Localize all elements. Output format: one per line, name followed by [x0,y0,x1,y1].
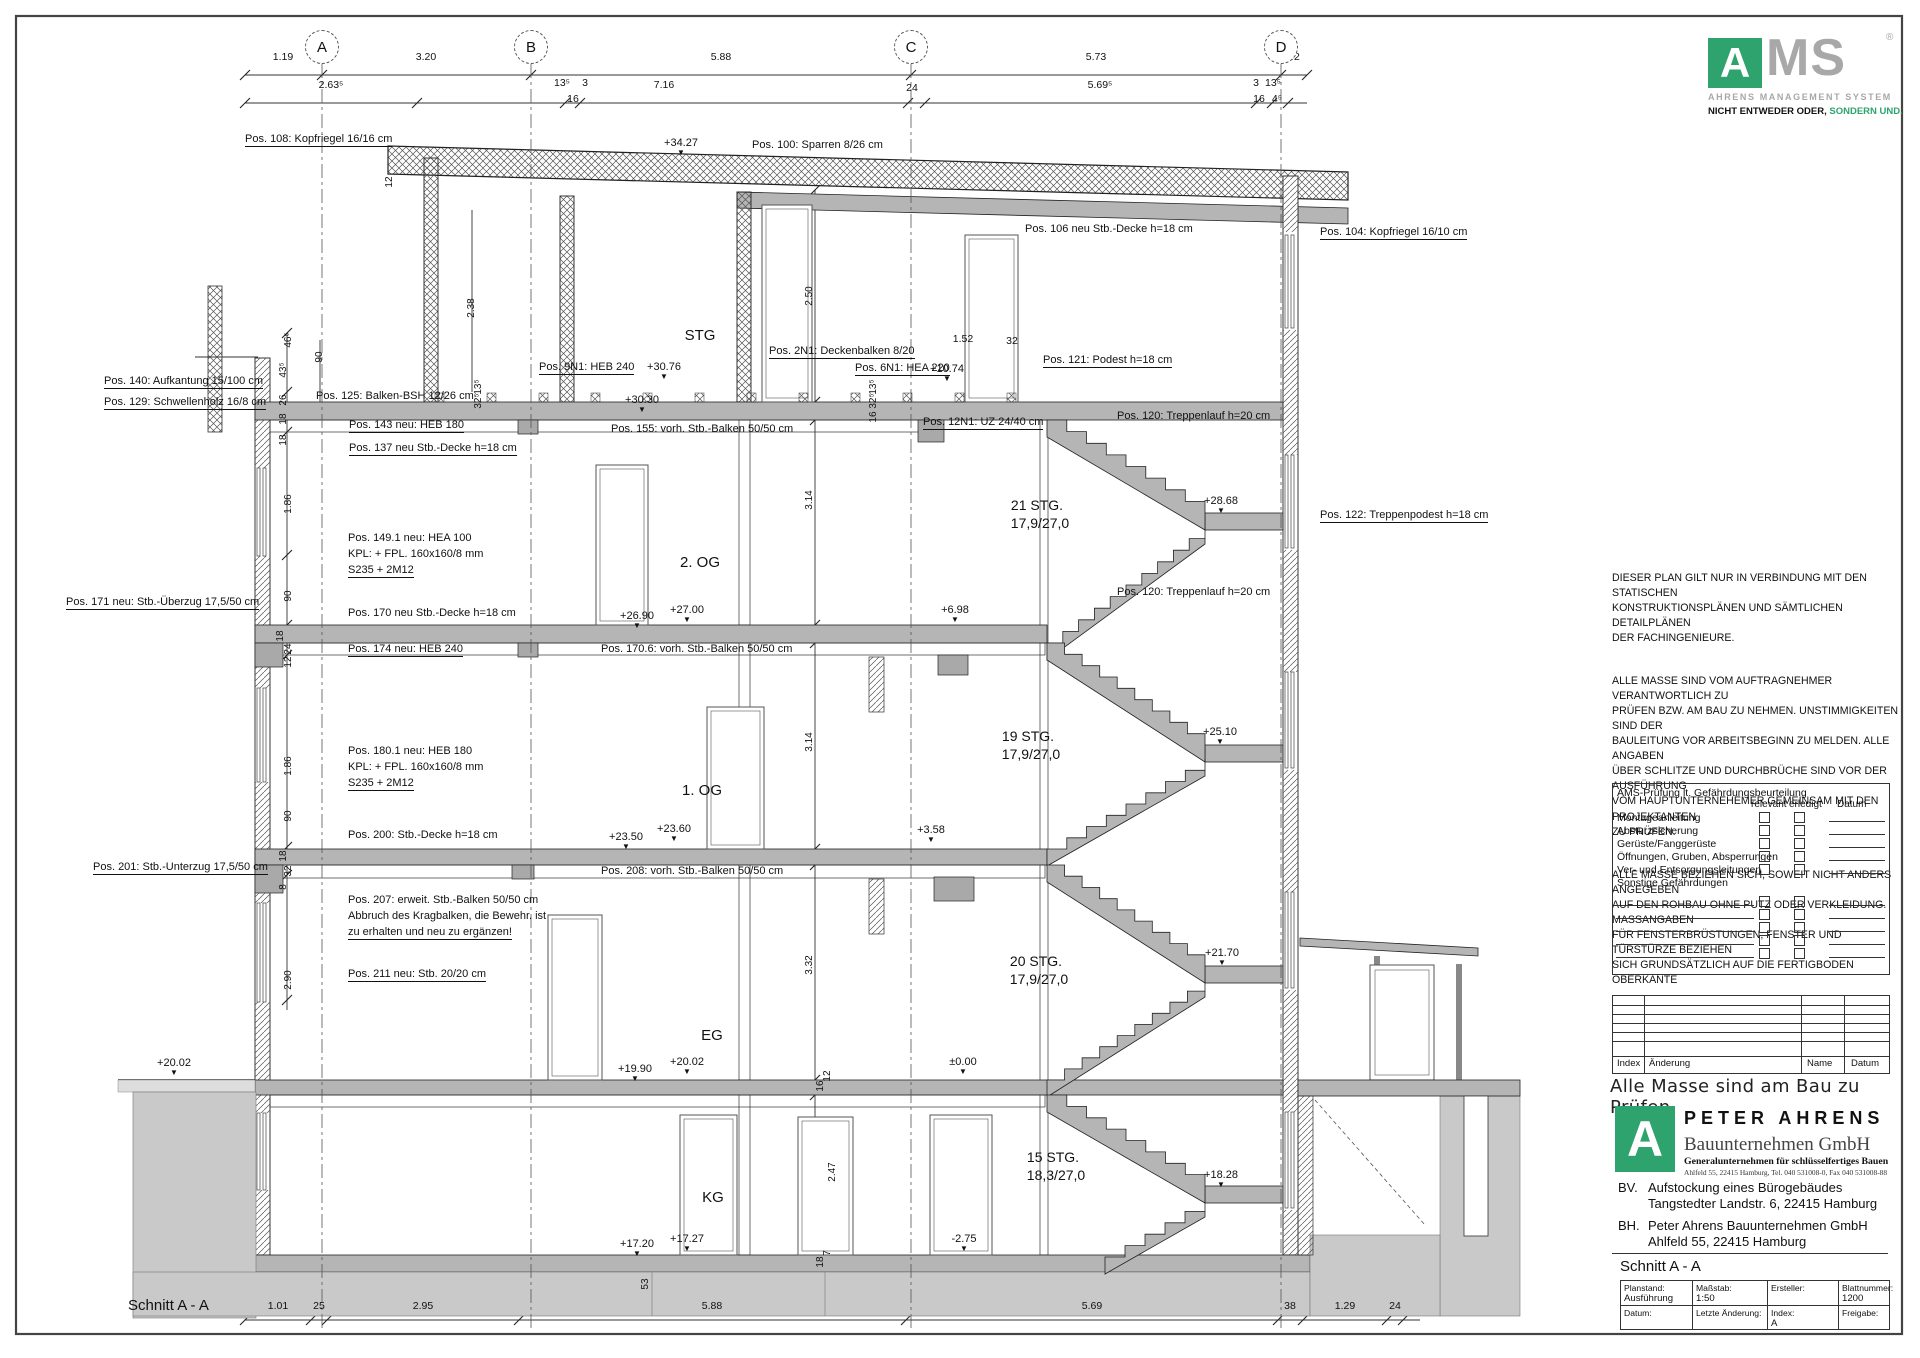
position-annotation: S235 + 2M12 [348,565,414,578]
level-marker-icon: ▼ [1216,737,1224,746]
level-marker-icon: ▼ [670,834,678,843]
bv-line1: Aufstockung eines Bürogebäudes [1648,1180,1894,1196]
checklist-checkbox [1794,864,1805,875]
room-label: EG [701,1028,723,1043]
divider [1612,1253,1888,1254]
section-caption: Schnitt A - A [128,1298,209,1313]
dimension-label: 7.16 [654,80,674,91]
peter-ahrens-logo-mark: A [1615,1106,1675,1172]
title-block-cell: Index:A [1767,1305,1839,1330]
position-annotation: Pos. 108: Kopfriegel 16/16 cm [245,134,392,147]
dimension-label: 18 [279,413,289,424]
dimension-label: 3 [582,78,588,89]
room-label: 1. OG [682,783,722,798]
checklist-row: Sonstige Gefährdungen [1613,877,1889,890]
dimension-label: 1.86 [284,756,294,775]
checklist-checkbox [1759,851,1770,862]
dimension-label: 12 [284,656,294,667]
level-marker-icon: ▼ [1217,506,1225,515]
checklist-checkbox [1759,812,1770,823]
position-annotation: Pos. 122: Treppenpodest h=18 cm [1320,510,1488,523]
checklist-blank-row [1613,896,1889,909]
position-annotation: Pos. 121: Podest h=18 cm [1043,355,1172,368]
ams-logo-line: AHRENS MANAGEMENT SYSTEM [1708,92,1892,102]
dimension-label: 1.19 [273,52,293,63]
checklist-blank-row [1613,909,1889,922]
title-block-label: Letzte Änderung: [1696,1308,1761,1318]
dimension-label: 5.69⁵ [1088,80,1113,91]
dimension-label: 32⁵ [869,393,879,408]
dimension-label: 18 [279,434,289,445]
dimension-label: 18 [279,850,289,861]
dimension-label: 2.38 [467,298,477,317]
dimension-label: 12 [385,176,395,187]
level-marker-icon: ▼ [960,1244,968,1253]
dimension-label: 1.01 [268,1301,288,1312]
stair-count-label: 21 STG. [1011,498,1063,512]
stair-count-label: 18,3/27,0 [1027,1168,1085,1182]
dimension-label: 8 [279,884,289,890]
checklist-checkbox [1794,935,1805,946]
grid-axis-label: B [526,39,536,56]
peter-ahrens-logo: A PETER AHRENS Bauunternehmen GmbH Gener… [1612,1104,1892,1176]
dimension-label: 13⁵ [869,379,879,394]
title-block-value: Ausführung [1624,1293,1673,1304]
position-annotation: Pos. 170.6: vorh. Stb.-Balken 50/50 cm [601,644,792,655]
checklist-item-label: Ver- und Entsorgungsleitungen [1617,864,1761,876]
position-annotation: S235 + 2M12 [348,778,414,791]
dimension-label: 90 [284,590,294,601]
dimension-label: 43⁵ [279,362,289,377]
col-header-erledigt: erledigt [1789,799,1822,810]
grid-axis-bubble: B [514,30,548,64]
title-block-cell: Letzte Änderung: [1692,1305,1768,1330]
level-marker-icon: ▼ [927,835,935,844]
level-marker-icon: ▼ [633,1249,641,1258]
stair-count-label: 19 STG. [1002,729,1054,743]
dimension-label: 13⁵ [1265,78,1281,89]
position-annotation: Pos. 125: Balken-BSH 12/26 cm [316,391,474,402]
title-block-cell: Planstand:Ausführung [1621,1281,1692,1305]
title-block-value: A [1771,1318,1777,1329]
grid-axis-label: D [1276,39,1287,56]
revision-table: Index Änderung Name Datum [1612,995,1890,1074]
stair-count-label: 20 STG. [1010,954,1062,968]
dimension-label: 13⁵ [554,78,570,89]
level-marker-icon: ▼ [170,1068,178,1077]
level-marker-icon: ▼ [683,1067,691,1076]
company-name: PETER AHRENS [1684,1108,1884,1129]
dimension-label: 5.69 [1082,1301,1102,1312]
position-annotation: Pos. 100: Sparren 8/26 cm [752,140,883,151]
title-block-label: Maßstab: [1696,1283,1732,1293]
title-block-label: Freigabe: [1842,1308,1878,1318]
position-annotation: Pos. 211 neu: Stb. 20/20 cm [348,969,486,982]
title-block-label: Index: [1771,1308,1794,1318]
company-desc: Generalunternehmen für schlüsselfertiges… [1684,1156,1888,1167]
dimension-label: 16 [869,411,879,422]
stair-count-label: 17,9/27,0 [1011,516,1069,530]
dimension-label: 3.32 [805,955,815,974]
company-address: Ahlfeld 55, 22415 Hamburg, Tel. 040 5310… [1684,1168,1887,1177]
stair-count-label: 15 STG. [1027,1150,1079,1164]
checklist-checkbox [1759,864,1770,875]
dimension-label: 3.14 [805,732,815,751]
sheet-title: Schnitt A - A [1620,1258,1701,1275]
level-marker-icon: ▼ [638,405,646,414]
checklist-checkbox [1794,948,1805,959]
title-block-label: Planstand: [1624,1283,1665,1293]
dimension-label: 26 [279,394,289,405]
level-marker-icon: ▼ [677,148,685,157]
title-block-label: Blattnummer: [1842,1283,1893,1293]
ams-slogan: NICHT ENTWEDER ODER, SONDERN UND. [1708,106,1903,117]
dimension-label: 18 [276,630,286,641]
dimension-label: 3.20 [416,52,436,63]
title-block-cell: Maßstab:1:50 [1692,1281,1768,1305]
checklist-row: Ver- und Entsorgungsleitungen [1613,864,1889,877]
dimension-label: 2.95 [413,1301,433,1312]
bv-label: BV. [1618,1180,1638,1196]
drawing-sheet: 1.193.205.885.73422.63⁵13⁵37.16245.69⁵31… [0,0,1920,1358]
position-annotation: Pos. 129: Schwellenholz 16/8 cm [104,397,266,410]
dimension-label: 2.50 [805,286,815,305]
dimension-label: 18 [816,1256,826,1267]
room-label: STG [685,328,716,343]
checklist-checkbox [1794,838,1805,849]
position-annotation: Pos. 171 neu: Stb.-Überzug 17,5/50 cm [66,597,259,610]
ams-logo-ms: MS [1766,32,1846,84]
dimension-label: 12 [823,1070,833,1081]
position-annotation: Pos. 155: vorh. Stb.-Balken 50/50 cm [611,424,793,435]
checklist-blank-row [1613,948,1889,961]
col-header-datum: Datum [1837,799,1866,810]
checklist-checkbox [1759,909,1770,920]
position-annotation: KPL: + FPL. 160x160/8 mm [348,762,483,773]
dimension-label: 32 [1006,336,1018,347]
dimension-label: 25 [313,1301,325,1312]
project-info: BV. Aufstockung eines Bürogebäudes Tangs… [1618,1180,1894,1256]
grid-axis-bubble: D [1264,30,1298,64]
dimension-label: 1.52 [953,334,973,345]
dimension-label: 5.88 [711,52,731,63]
position-annotation: Pos. 180.1 neu: HEB 180 [348,746,472,757]
position-annotation: Pos. 149.1 neu: HEA 100 [348,533,472,544]
dimension-label: 16 [816,1080,826,1091]
title-block: Planstand:AusführungMaßstab:1:50Erstelle… [1620,1280,1890,1330]
checklist-checkbox [1794,909,1805,920]
room-label: KG [702,1190,724,1205]
position-annotation: Pos. 2N1: Deckenbalken 8/20 [769,346,915,359]
level-marker-icon: ▼ [943,374,951,383]
dimension-label: 24 [284,643,294,654]
checklist-row: Gerüste/Fanggerüste [1613,838,1889,851]
checklist-item-label: Gerüste/Fanggerüste [1617,838,1716,850]
checklist-blank-row [1613,922,1889,935]
level-marker-icon: ▼ [1217,1180,1225,1189]
checklist-item-label: Öffnungen, Gruben, Absperrungen [1617,851,1778,863]
checklist-checkbox [1759,935,1770,946]
checklist-checkbox [1794,851,1805,862]
title-block-cell: Ersteller: [1767,1281,1839,1305]
dimension-label: 3.14 [805,490,815,509]
position-annotation: Pos. 106 neu Stb.-Decke h=18 cm [1025,224,1193,235]
checklist-checkbox [1794,896,1805,907]
position-annotation: Pos. 9N1: HEB 240 [539,362,634,375]
dimension-label: 32 [284,865,294,876]
checklist-checkbox [1759,948,1770,959]
level-marker-icon: ▼ [1218,958,1226,967]
revision-blank-row [1613,1032,1889,1042]
level-marker-icon: ▼ [622,842,630,851]
dimension-label: 46⁵ [284,332,294,347]
dimension-label: 38 [1284,1301,1296,1312]
ams-logo: A MS ® AHRENS MANAGEMENT SYSTEM NICHT EN… [1700,30,1900,122]
position-annotation: Pos. 120: Treppenlauf h=20 cm [1117,587,1270,598]
position-annotation: Pos. 201: Stb.-Unterzug 17,5/50 cm [93,862,268,875]
dimension-label: 32⁵ [474,393,484,408]
bh-line2: Ahlfeld 55, 22415 Hamburg [1648,1234,1894,1250]
position-annotation: Pos. 207: erweit. Stb.-Balken 50/50 cm [348,895,538,906]
checklist-row: Öffnungen, Gruben, Absperrungen [1613,851,1889,864]
dimension-label: 13⁵ [474,379,484,394]
grid-axis-label: A [317,39,327,56]
checklist-checkbox [1759,838,1770,849]
dimension-label: 16 [567,94,579,105]
checklist-checkbox [1759,825,1770,836]
checklist-checkbox [1759,896,1770,907]
checklist-row: Absturzsicherung [1613,825,1889,838]
dimension-label: 1.86 [284,494,294,513]
grid-axis-label: C [906,39,917,56]
position-annotation: Pos. 137 neu Stb.-Decke h=18 cm [349,443,517,456]
title-block-cell: Datum: [1621,1305,1692,1330]
check-table-title: AMS-Prüfung lt. Gefährdungsbeurteilung [1617,787,1807,799]
stair-count-label: 17,9/27,0 [1002,747,1060,761]
dimension-label: 24 [1389,1301,1401,1312]
dimension-label: 2.47 [828,1162,838,1181]
checklist-blank-row [1613,935,1889,948]
level-marker-icon: ▼ [683,1244,691,1253]
company-sub: Bauunternehmen GmbH [1684,1134,1870,1156]
col-header-relevant: relevant [1751,799,1787,810]
position-annotation: Pos. 104: Kopfriegel 16/10 cm [1320,227,1467,240]
checklist-item-label: Montageanleitung [1617,812,1700,824]
dimension-label: 3 [1253,78,1259,89]
title-block-cell: Freigabe: [1838,1305,1890,1330]
level-marker-icon: ▼ [951,615,959,624]
dimension-label: 2.90 [284,970,294,989]
bv-line2: Tangstedter Landstr. 6, 22415 Hamburg [1648,1196,1894,1212]
dimension-label: 2.63⁵ [319,80,344,91]
ams-logo-mark: A [1708,38,1762,88]
title-block-value: 1200 [1842,1293,1863,1304]
title-block-cell: Blattnummer:1200 [1838,1281,1890,1305]
bh-line1: Peter Ahrens Bauunternehmen GmbH [1648,1218,1894,1234]
checklist-checkbox [1794,812,1805,823]
dimension-label: 5.88 [702,1301,722,1312]
room-label: 2. OG [680,555,720,570]
bh-label: BH. [1618,1218,1640,1234]
dimension-label: 1.29 [1335,1301,1355,1312]
position-annotation: Pos. 12N1: UZ 24/40 cm [923,417,1043,430]
dimension-label: 90 [315,351,325,362]
dimension-label: 53 [641,1278,651,1289]
checklist-checkbox [1759,922,1770,933]
level-marker-icon: ▼ [660,372,668,381]
level-marker-icon: ▼ [683,615,691,624]
stair-count-label: 17,9/27,0 [1010,972,1068,986]
position-annotation: Pos. 174 neu: HEB 240 [348,644,463,657]
dimension-label: 24 [906,83,918,94]
dimension-label: 7 [823,1250,833,1256]
note-paragraph: DIESER PLAN GILT NUR IN VERBINDUNG MIT D… [1612,571,1904,646]
grid-axis-bubble: A [305,30,339,64]
position-annotation: Pos. 200: Stb.-Decke h=18 cm [348,830,498,841]
level-marker-icon: ▼ [631,1074,639,1083]
checklist-checkbox [1794,825,1805,836]
title-block-label: Ersteller: [1771,1283,1805,1293]
checklist-item-label: Sonstige Gefährdungen [1617,877,1728,889]
position-annotation: Abbruch des Kragbalken, die Bewehr. ist [348,911,546,922]
checklist-item-label: Absturzsicherung [1617,825,1698,837]
registered-icon: ® [1886,32,1893,43]
dimension-label: 5.73 [1086,52,1106,63]
title-block-label: Datum: [1624,1308,1652,1318]
position-annotation: Pos. 140: Aufkantung 15/100 cm [104,376,263,389]
title-block-value: 1:50 [1696,1293,1715,1304]
checklist-checkbox [1794,922,1805,933]
dimension-label: 16 [1253,94,1265,105]
checklist-row: Montageanleitung [1613,812,1889,825]
position-annotation: KPL: + FPL. 160x160/8 mm [348,549,483,560]
position-annotation: Pos. 170 neu Stb.-Decke h=18 cm [348,608,516,619]
grid-axis-bubble: C [894,30,928,64]
ams-check-table: AMS-Prüfung lt. Gefährdungsbeurteilung r… [1612,783,1890,975]
dimension-label: 90 [284,810,294,821]
dimension-label: 4⁵ [1272,94,1282,105]
level-marker-icon: ▼ [633,621,641,630]
level-marker-icon: ▼ [959,1067,967,1076]
position-annotation: Pos. 208: vorh. Stb.-Balken 50/50 cm [601,866,783,877]
position-annotation: Pos. 143 neu: HEB 180 [349,420,464,433]
position-annotation: zu erhalten und neu zu ergänzen! [348,927,512,940]
position-annotation: Pos. 120: Treppenlauf h=20 cm [1117,411,1270,422]
